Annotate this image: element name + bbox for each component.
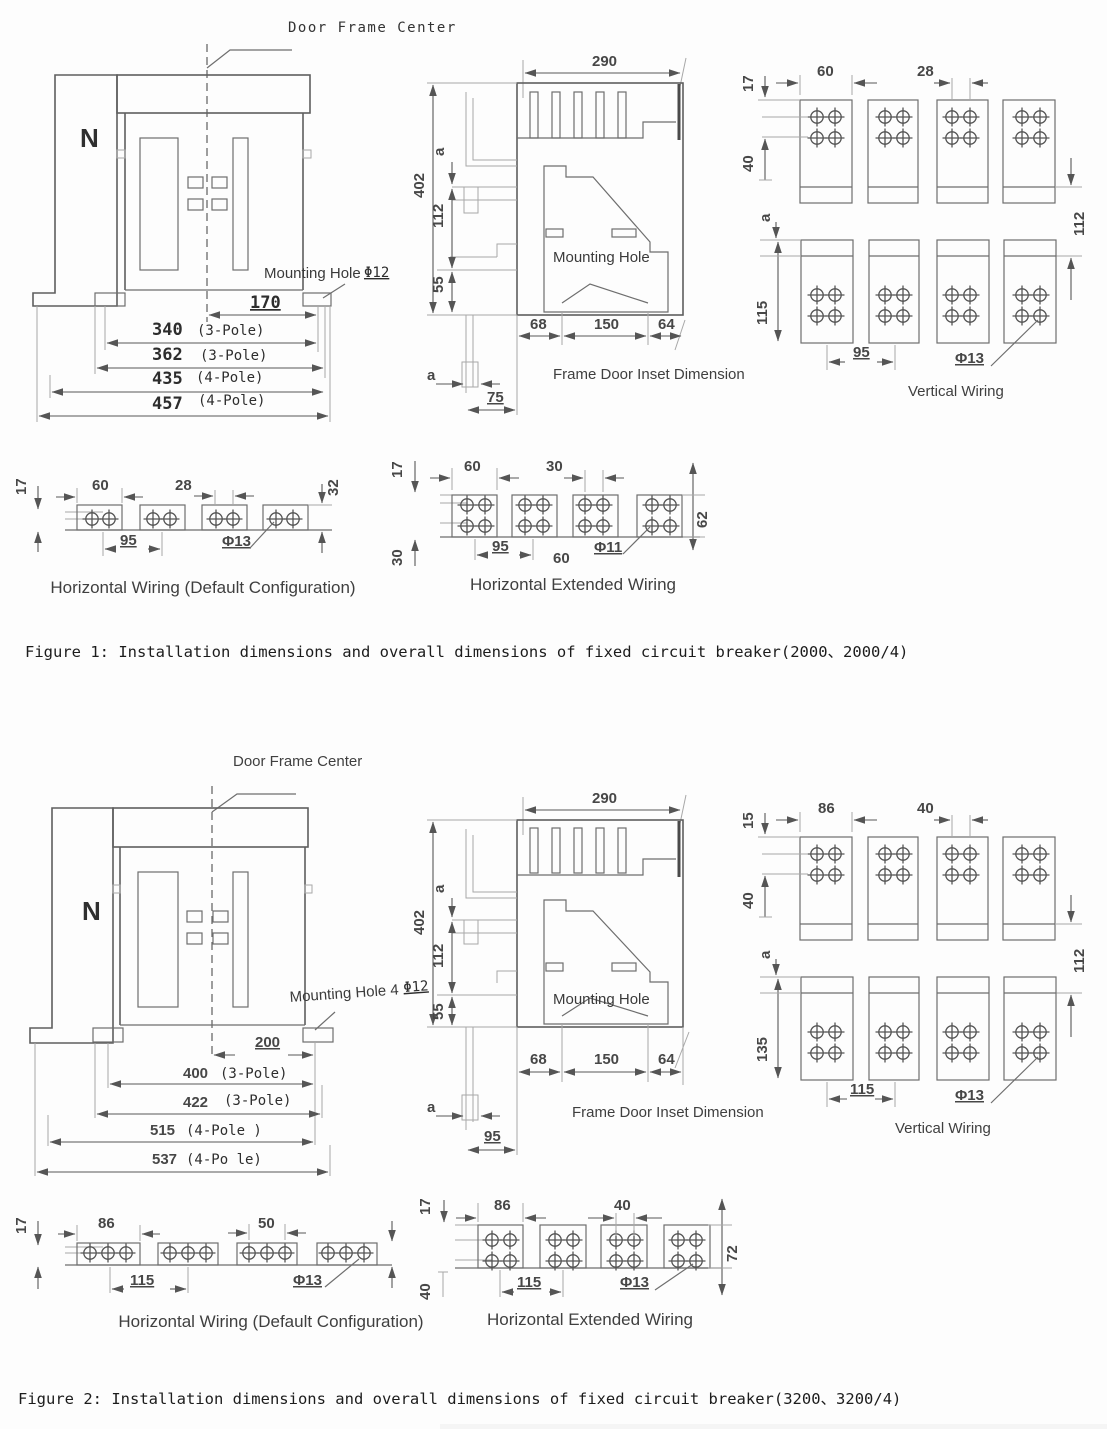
- dim-86: 86: [494, 1197, 511, 1214]
- dim-32: 32: [325, 479, 342, 496]
- dim-135: 135: [754, 1037, 771, 1062]
- dim-28: 28: [175, 477, 192, 494]
- dim-115: 115: [850, 1081, 874, 1098]
- scan-artifact-band: [440, 1424, 1107, 1429]
- dim-55: 55: [430, 276, 447, 293]
- dim-17: 17: [13, 478, 30, 495]
- dim-422: 422: [183, 1094, 208, 1111]
- dim-112: 112: [430, 204, 447, 228]
- horizontal-wiring-title: Horizontal Wiring (Default Configuration…: [50, 578, 355, 597]
- dim-60: 60: [92, 477, 109, 494]
- dim-290: 290: [592, 790, 617, 807]
- door-frame-center-label: Door Frame Center: [233, 753, 362, 770]
- mounting-hole-size: Φ12: [364, 265, 389, 281]
- dim-40-top: 40: [917, 800, 934, 817]
- dim-a: a: [757, 213, 774, 222]
- mounting-hole-label: Mounting Hole: [553, 991, 650, 1008]
- side-view-title: Frame Door Inset Dimension: [572, 1104, 764, 1121]
- dim-62: 62: [694, 511, 711, 528]
- dim-68: 68: [530, 316, 547, 333]
- dim-a-bottom: a: [427, 1099, 436, 1116]
- dim-50: 50: [258, 1215, 275, 1232]
- dim-60: 60: [817, 63, 834, 80]
- dim-64: 64: [658, 1051, 675, 1068]
- figure1-caption: Figure 1: Installation dimensions and ov…: [25, 643, 908, 661]
- neutral-pole-label: N: [80, 123, 99, 153]
- neutral-pole-label: N: [82, 896, 101, 926]
- dim-a-bottom: a: [427, 367, 436, 384]
- circuit-breaker-dimension-drawing: Door Frame Center N Mounting Hole Φ12 17…: [0, 0, 1107, 1429]
- hole-diameter: Φ13: [620, 1274, 649, 1291]
- hole-diameter: Φ13: [222, 533, 251, 550]
- dim-115: 115: [130, 1272, 154, 1289]
- dim-a-top: a: [431, 884, 448, 893]
- dim-515-note: (4-Pole ): [186, 1123, 262, 1139]
- dim-150: 150: [594, 1051, 619, 1068]
- dim-60-bottom: 60: [553, 550, 570, 567]
- vertical-wiring-title: Vertical Wiring: [895, 1120, 991, 1137]
- dim-17: 17: [389, 461, 406, 478]
- dim-40-bottom: 40: [417, 1283, 434, 1300]
- horizontal-extended-title: Horizontal Extended Wiring: [487, 1310, 693, 1329]
- fig2-front-view: Door Frame Center N Mounting Hole 4 Φ12 …: [30, 753, 429, 1176]
- dim-28: 28: [917, 63, 934, 80]
- dim-75: 75: [487, 389, 504, 406]
- dim-72: 72: [724, 1245, 741, 1262]
- dim-55: 55: [430, 1003, 447, 1020]
- dim-457-note: (4-Pole): [198, 393, 265, 409]
- dim-422-note: (3-Pole): [224, 1093, 291, 1109]
- dim-40: 40: [614, 1197, 631, 1214]
- horizontal-wiring-title: Horizontal Wiring (Default Configuration…: [118, 1312, 423, 1331]
- dim-a: a: [757, 950, 774, 959]
- fig1-side-view: 290 Mounting Hole 402 a 112 55: [411, 53, 745, 415]
- dim-457: 457: [152, 394, 183, 414]
- fig1-horizontal-extended-wiring: 17 30 60 30 62 95 60 Φ11 Horizontal Exte…: [389, 458, 711, 594]
- dim-95: 95: [853, 344, 870, 361]
- dim-170: 170: [250, 293, 281, 313]
- dim-86: 86: [98, 1215, 115, 1232]
- dim-60: 60: [464, 458, 481, 475]
- dim-112: 112: [430, 944, 447, 968]
- dim-362-note: (3-Pole): [200, 348, 267, 364]
- dim-435: 435: [152, 369, 183, 389]
- technical-drawing-page: Door Frame Center N Mounting Hole Φ12 17…: [0, 0, 1107, 1429]
- fig2-vertical-wiring: 15 86 40 40 a 135 112 115 Φ13 Vertical W…: [740, 800, 1088, 1137]
- mounting-hole-label: Mounting Hole: [264, 265, 361, 282]
- dim-340: 340: [152, 320, 183, 340]
- dim-17: 17: [13, 1217, 30, 1234]
- vertical-wiring-title: Vertical Wiring: [908, 383, 1004, 400]
- dim-64: 64: [658, 316, 675, 333]
- fig1-horizontal-wiring: 17 60 28 32 95 Φ13 Horizontal Wiring (De…: [13, 477, 356, 597]
- dim-112: 112: [1071, 949, 1088, 973]
- dim-15: 15: [740, 812, 757, 829]
- fig2-horizontal-wiring: 17 86 50 115 Φ13 Horizontal Wiring (Defa…: [13, 1215, 424, 1331]
- fig2-horizontal-extended-wiring: 17 86 40 72 40 115 Φ13 Horizontal Extend…: [417, 1197, 741, 1329]
- horizontal-extended-title: Horizontal Extended Wiring: [470, 575, 676, 594]
- dim-68: 68: [530, 1051, 547, 1068]
- side-view-title: Frame Door Inset Dimension: [553, 366, 745, 383]
- dim-30-top: 30: [546, 458, 563, 475]
- dim-30-bottom: 30: [389, 549, 406, 566]
- dim-95: 95: [492, 538, 509, 555]
- dim-115: 115: [517, 1274, 541, 1291]
- dim-86: 86: [818, 800, 835, 817]
- dim-95: 95: [120, 532, 137, 549]
- dim-362: 362: [152, 345, 183, 365]
- dim-a-top: a: [431, 147, 448, 156]
- dim-150: 150: [594, 316, 619, 333]
- hole-diameter: Φ13: [293, 1272, 322, 1289]
- dim-340-note: (3-Pole): [197, 323, 264, 339]
- dim-537: 537: [152, 1151, 177, 1168]
- dim-95: 95: [484, 1128, 501, 1145]
- dim-17: 17: [740, 75, 757, 92]
- mounting-hole-size: Φ12: [403, 978, 429, 996]
- door-frame-center-label: Door Frame Center: [288, 20, 457, 36]
- dim-112: 112: [1071, 212, 1088, 236]
- hole-diameter: Φ11: [594, 539, 622, 556]
- hole-diameter: Φ13: [955, 350, 984, 367]
- fig1-front-view: Door Frame Center N Mounting Hole Φ12 17…: [33, 20, 457, 422]
- dim-515: 515: [150, 1122, 175, 1139]
- fig1-vertical-wiring: 17 60 28 40 a 115 112 95 Φ13 Vertical Wi…: [740, 63, 1088, 400]
- dim-17: 17: [417, 1198, 434, 1215]
- dim-537-note: (4-Po le): [186, 1152, 262, 1168]
- dim-402: 402: [411, 910, 428, 935]
- dim-400: 400: [183, 1065, 208, 1082]
- dim-400-note: (3-Pole): [220, 1066, 287, 1082]
- dim-435-note: (4-Pole): [196, 370, 263, 386]
- dim-40: 40: [740, 155, 757, 172]
- mounting-hole-label: Mounting Hole: [553, 249, 650, 266]
- fig2-side-view: 290 Mounting Hole 402 a 112 55: [411, 790, 764, 1155]
- figure2-caption: Figure 2: Installation dimensions and ov…: [18, 1390, 901, 1408]
- dim-200: 200: [255, 1034, 280, 1051]
- dim-40: 40: [740, 892, 757, 909]
- dim-115: 115: [754, 301, 771, 325]
- dim-402: 402: [411, 173, 428, 198]
- dim-290: 290: [592, 53, 617, 70]
- hole-diameter: Φ13: [955, 1087, 984, 1104]
